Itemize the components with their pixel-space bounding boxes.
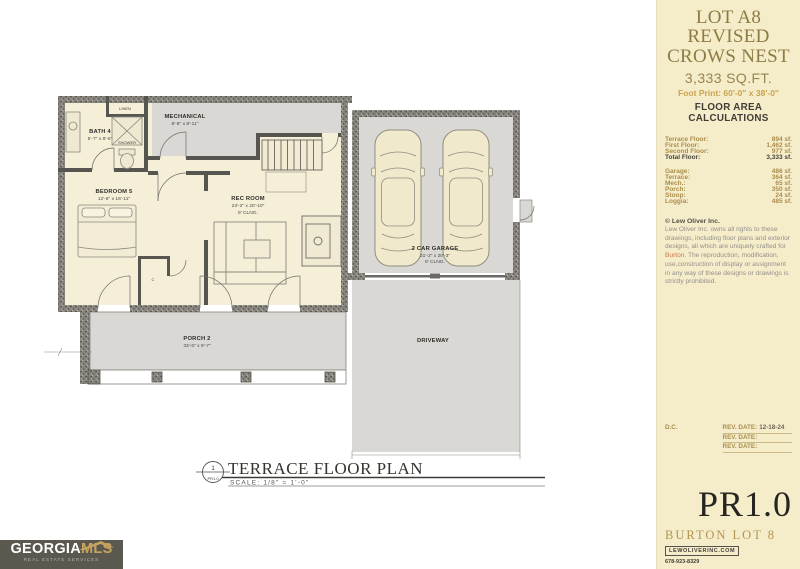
title-block-sidebar: LOT A8 REVISED CROWS NEST 3,333 SQ.FT. F… xyxy=(656,0,800,569)
lot-title-line2: REVISED xyxy=(665,27,792,46)
rev-label: REV. DATE: xyxy=(723,434,758,443)
copyright-text: Lew Oliver Inc. owns all rights to these… xyxy=(665,226,792,287)
copyright-pre: Lew Oliver Inc. owns all rights to these… xyxy=(665,226,790,250)
label-driveway: DRIVEWAY xyxy=(417,338,449,344)
label-recroom: REC ROOM xyxy=(231,196,264,202)
phone-number: 678-923-8329 xyxy=(665,559,699,565)
rev-label: REV. DATE: xyxy=(723,443,758,452)
garage-door-center xyxy=(430,274,440,279)
row-value: 3,333 sf. xyxy=(766,155,792,161)
total-sqft: 3,333 SQ.FT. xyxy=(665,70,792,86)
project-name: BURTON LOT 8 xyxy=(665,528,776,543)
label-shower: SHOWER xyxy=(118,140,136,145)
label-porch: PORCH 2 xyxy=(183,336,210,342)
fireplace xyxy=(302,216,341,266)
lot-title: LOT A8 REVISED CROWS NEST xyxy=(665,8,792,66)
rev-date-row: REV. DATE: 12-18-24 xyxy=(723,424,792,434)
website: LEWOLIVERINC.COM xyxy=(665,546,739,556)
label-bath-dims: 5'-7" x 8'-5" xyxy=(88,136,113,142)
porch-edge-band xyxy=(90,370,346,384)
revision-block: D.C. REV. DATE: 12-18-24 REV. DATE: REV.… xyxy=(665,424,792,453)
label-recroom-clng: 9' CLNG. xyxy=(238,210,258,216)
roof-icon xyxy=(79,541,115,550)
lot-title-line1: LOT A8 xyxy=(665,8,792,27)
copyright-post: . The reproduction, modification, use,co… xyxy=(665,252,789,285)
rev-date: 12-18-24 xyxy=(759,424,784,433)
porch-floor xyxy=(90,312,346,370)
floor-area-heading: FLOOR AREA CALCULATIONS xyxy=(665,102,792,124)
label-mechanical: MECHANICAL xyxy=(165,114,206,120)
label-garage-clng: 9' CLNG. xyxy=(425,259,445,265)
label-recroom-dims: 23'-2" x 20'-10" xyxy=(232,203,265,209)
footprint: Foot Print: 60'-0" x 38'-0" xyxy=(665,88,792,98)
row-label: Loggia: xyxy=(665,199,688,205)
plan-title-block: 1 PR1.0 TERRACE FLOOR PLAN SCALE: 1/8" =… xyxy=(196,459,545,487)
lot-title-line3: CROWS NEST xyxy=(665,47,792,66)
rev-label: REV. DATE: xyxy=(723,424,758,433)
logo-tagline: REAL ESTATE SERVICES xyxy=(0,557,123,562)
label-garage-dims: 21'-2" x 20'-3" xyxy=(420,253,450,259)
sheet-number: PR1.0 xyxy=(698,486,792,522)
plan-title: TERRACE FLOOR PLAN xyxy=(228,459,423,478)
plan-scale: SCALE: 1/8" = 1'-0" xyxy=(230,480,309,487)
table-row-total: Total Floor: 3,333 sf. xyxy=(665,155,792,161)
copyright-heading: © Lew Oliver Inc. xyxy=(665,218,792,225)
row-value: 485 sf. xyxy=(772,199,792,205)
copyright-block: © Lew Oliver Inc. Lew Oliver Inc. owns a… xyxy=(665,218,792,287)
driveway xyxy=(352,280,520,452)
mechanical-room-floor-2 xyxy=(152,103,256,156)
label-bath: BATH 4 xyxy=(89,129,111,135)
floor-area-table: Terrace Floor: 894 sf. First Floor: 1,46… xyxy=(665,137,792,205)
bed xyxy=(78,205,136,257)
rev-date-row: REV. DATE: xyxy=(723,434,792,444)
label-porch-dims: 33'-6" x 9'-7" xyxy=(183,343,211,349)
label-bedroom: BEDROOM 5 xyxy=(96,189,133,195)
title-bubble-sheet: PR1.0 xyxy=(207,476,219,481)
label-bedroom-dims: 12'-6" x 16'-11" xyxy=(98,196,131,202)
floor-plan-sheet: LINEN MECHANICAL 8'-8" x 8'-11" BATH 4 5… xyxy=(0,0,800,569)
georgia-mls-logo: GEORGIAMLS REAL ESTATE SERVICES xyxy=(0,540,123,569)
table-row: Loggia: 485 sf. xyxy=(665,199,792,205)
copyright-client-name: Burton xyxy=(665,252,684,259)
label-garage: 2 CAR GARAGE xyxy=(412,246,459,252)
label-closet: C xyxy=(152,277,155,282)
logo-georgia: GEORGIA xyxy=(10,541,81,557)
label-mechanical-dims: 8'-8" x 8'-11" xyxy=(172,121,199,127)
title-bubble-number: 1 xyxy=(211,465,215,472)
rev-date-row: REV. DATE: xyxy=(723,443,792,453)
drawn-by: D.C. xyxy=(665,424,723,431)
row-label: Total Floor: xyxy=(665,155,700,161)
label-linen: LINEN xyxy=(119,106,131,111)
